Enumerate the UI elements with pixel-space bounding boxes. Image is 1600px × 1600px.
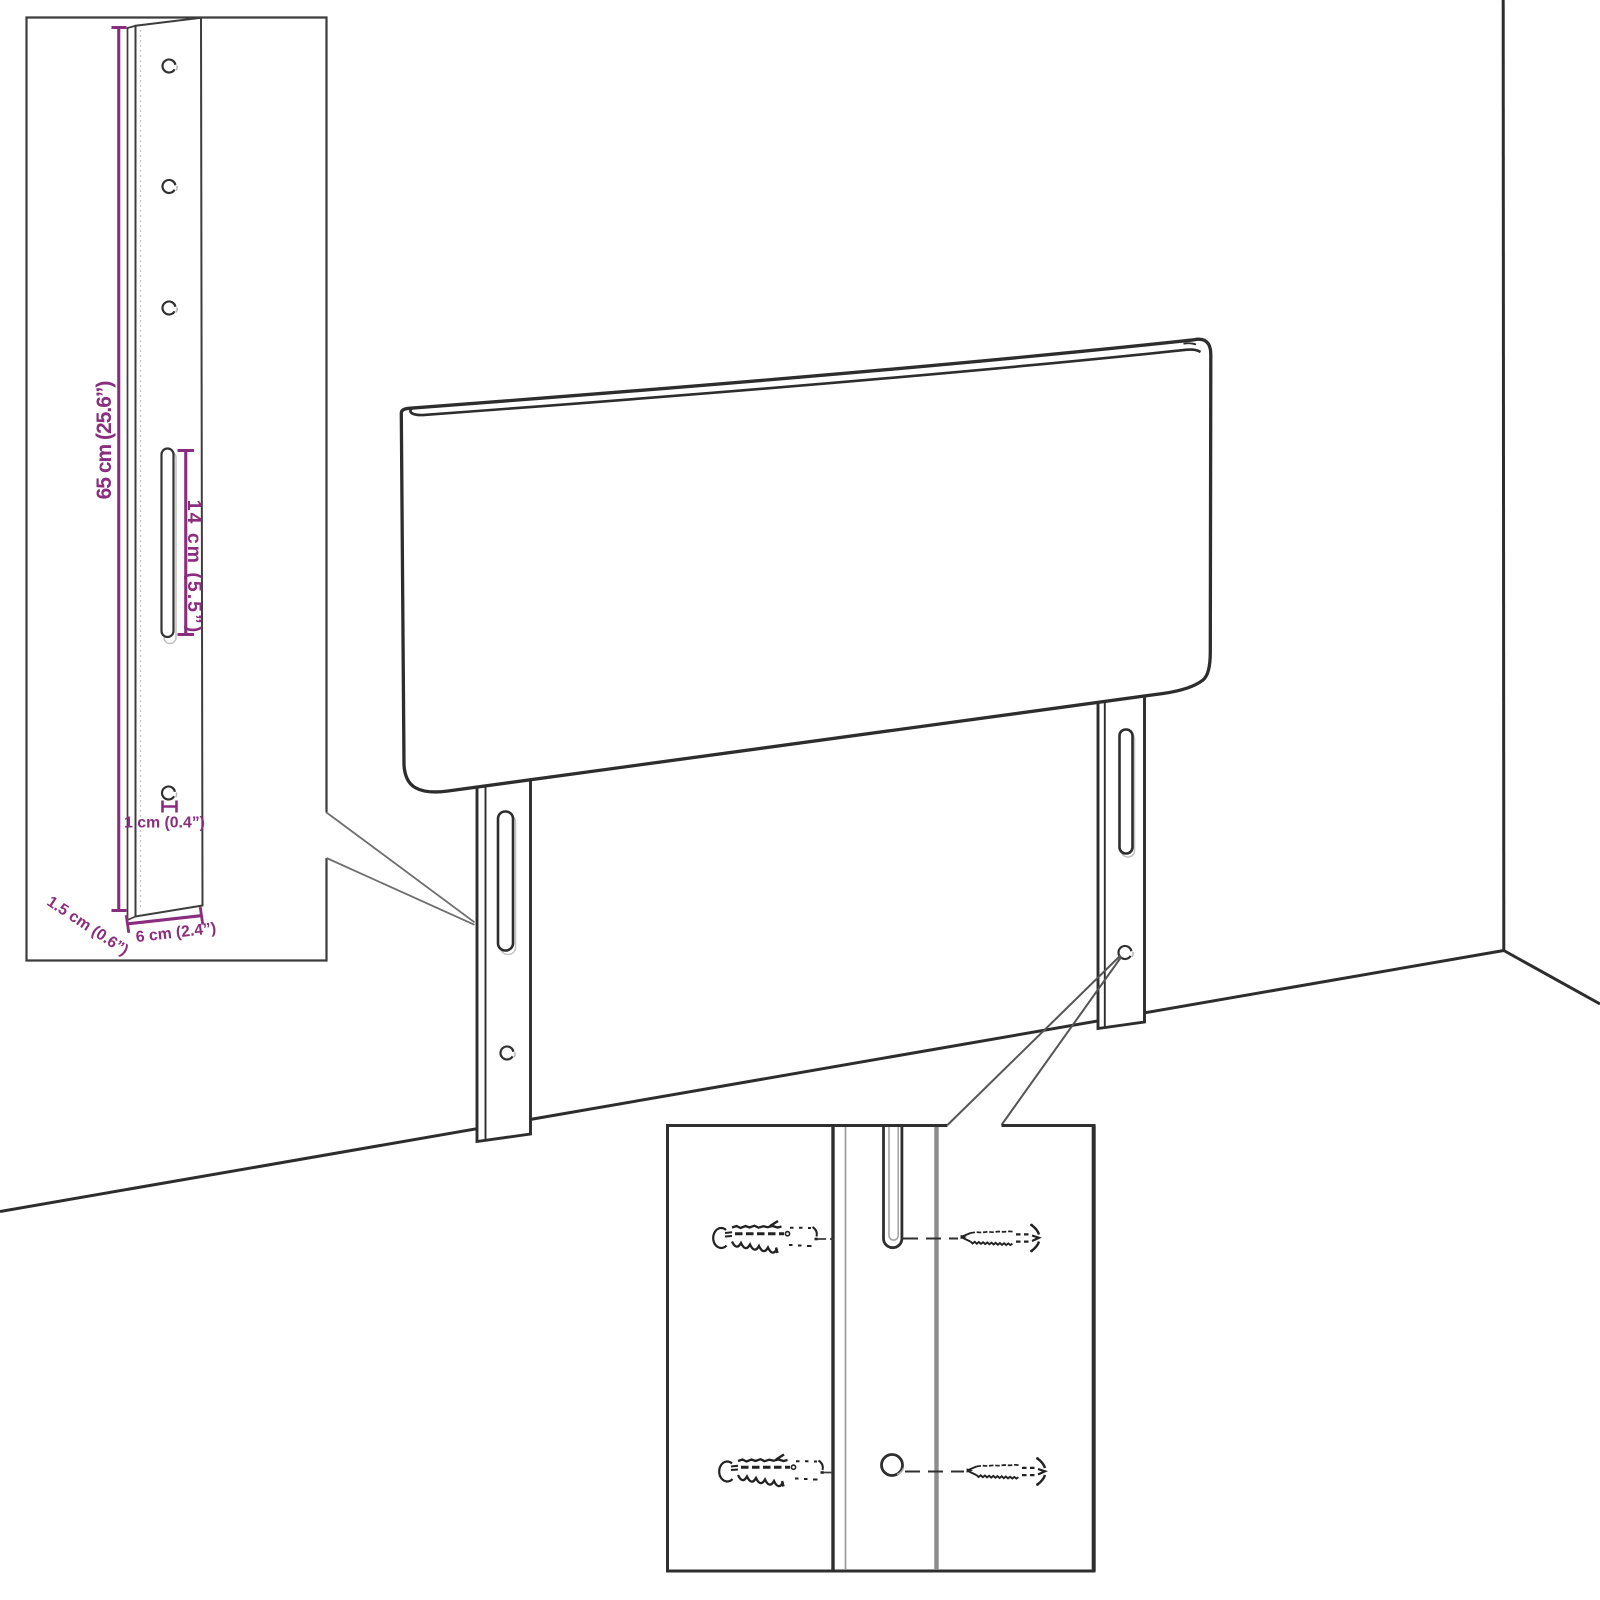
svg-text:1 cm (0.4”): 1 cm (0.4”) [124, 815, 205, 832]
svg-text:14 cm (5.5”): 14 cm (5.5”) [183, 500, 205, 635]
svg-text:65 cm (25.6”): 65 cm (25.6”) [93, 382, 116, 500]
